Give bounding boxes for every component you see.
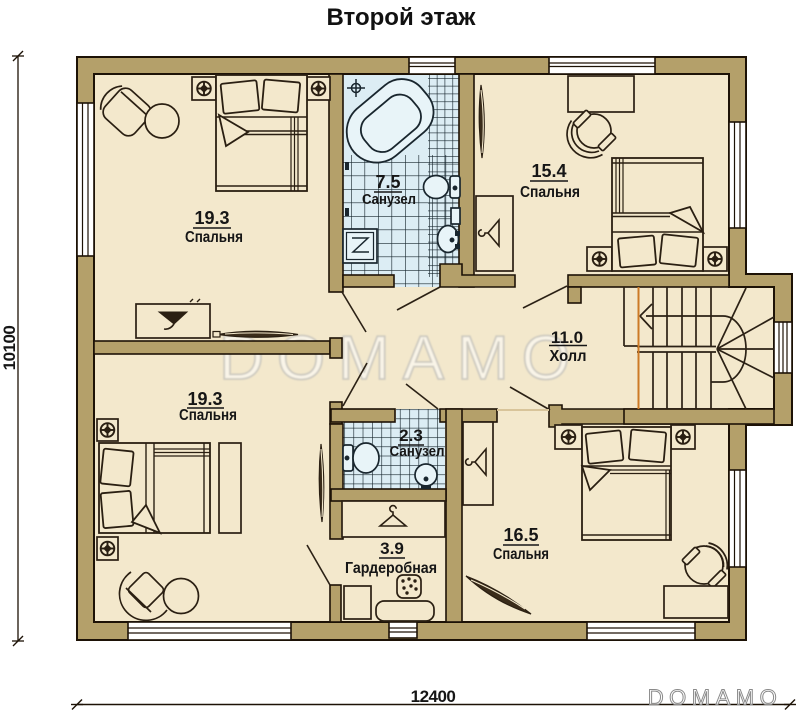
svg-text:10100: 10100 — [0, 326, 19, 371]
svg-text:Гардеробная: Гардеробная — [345, 560, 437, 577]
svg-text:Санузел: Санузел — [390, 444, 445, 460]
svg-text:Спальня: Спальня — [520, 184, 580, 201]
svg-text:15.4: 15.4 — [531, 161, 566, 181]
svg-text:Спальня: Спальня — [185, 229, 243, 246]
svg-text:2.3: 2.3 — [399, 426, 423, 445]
svg-text:Спальня: Спальня — [179, 407, 237, 424]
svg-text:Второй этаж: Второй этаж — [327, 4, 477, 31]
svg-text:3.9: 3.9 — [380, 539, 404, 558]
svg-text:19.3: 19.3 — [194, 208, 229, 228]
svg-text:Спальня: Спальня — [493, 546, 549, 563]
svg-text:11.0: 11.0 — [551, 328, 583, 347]
svg-text:19.3: 19.3 — [187, 389, 222, 409]
svg-text:Санузел: Санузел — [362, 192, 416, 208]
svg-text:16.5: 16.5 — [503, 525, 538, 545]
svg-text:Холл: Холл — [550, 348, 587, 365]
svg-text:7.5: 7.5 — [375, 172, 400, 192]
svg-text:12400: 12400 — [411, 687, 456, 706]
svg-text:DOMAMO: DOMAMO — [648, 685, 782, 710]
